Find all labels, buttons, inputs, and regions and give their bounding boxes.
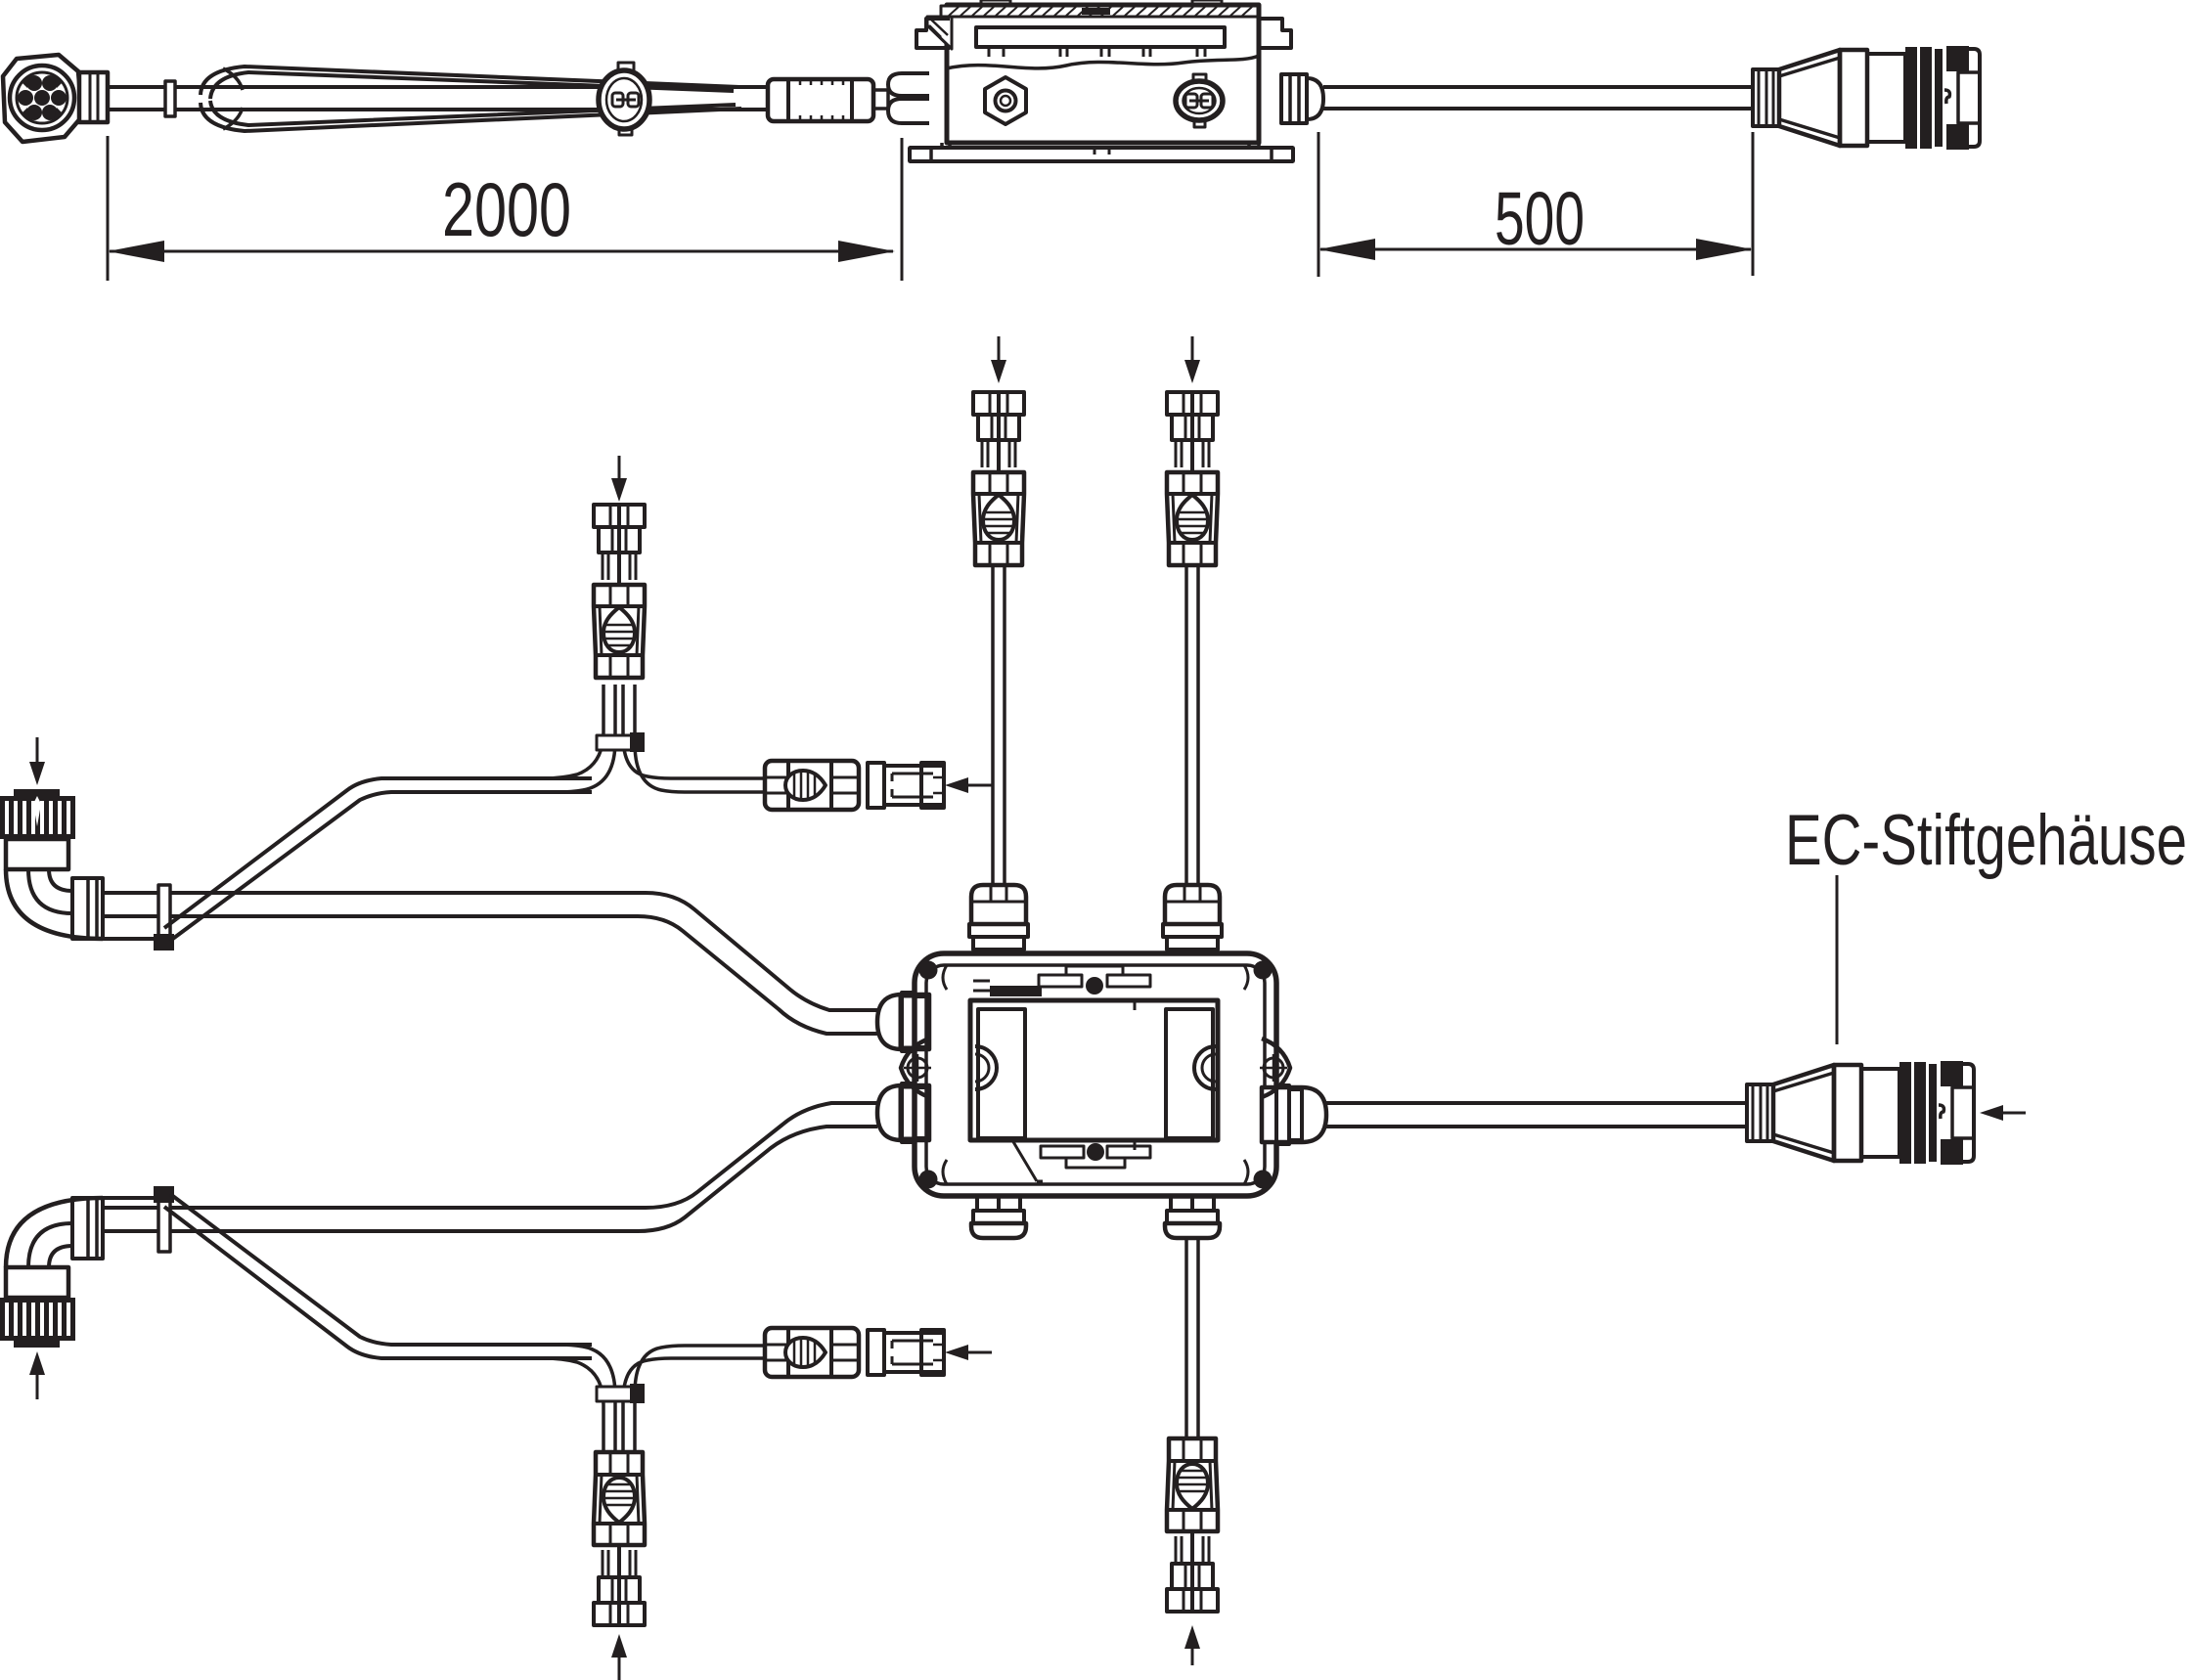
svg-text:EC-Stiftgehäuse: EC-Stiftgehäuse [1785, 801, 2187, 880]
svg-text:2000: 2000 [442, 166, 571, 252]
svg-text:500: 500 [1495, 177, 1585, 261]
